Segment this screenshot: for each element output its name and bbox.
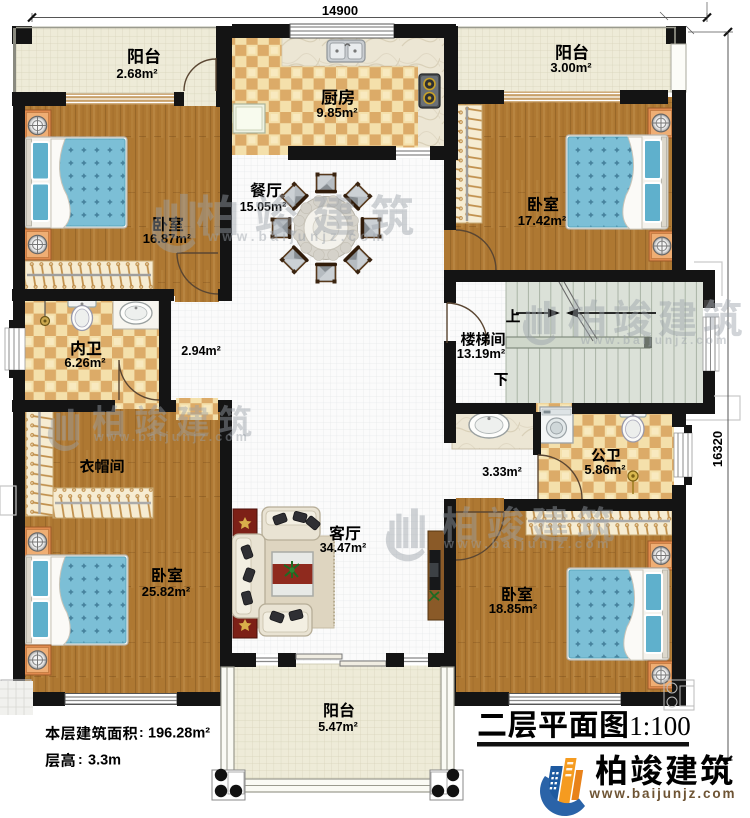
svg-text:9.85m²: 9.85m²: [316, 105, 358, 120]
svg-text:5.86m²: 5.86m²: [584, 462, 626, 477]
svg-text::: :: [78, 751, 83, 767]
svg-text:2.68m²: 2.68m²: [116, 66, 158, 81]
svg-text:17.42m²: 17.42m²: [518, 213, 567, 228]
svg-text:18.85m²: 18.85m²: [489, 601, 538, 616]
svg-text::: :: [139, 724, 144, 740]
svg-text:3.3m: 3.3m: [88, 753, 121, 769]
svg-text:2.94m²: 2.94m²: [181, 344, 221, 358]
svg-text:www.baijunjz.com: www.baijunjz.com: [589, 786, 737, 801]
svg-text:3.00m²: 3.00m²: [550, 60, 592, 75]
svg-text:www.baijunjz.com: www.baijunjz.com: [580, 333, 729, 347]
svg-text:34.47m²: 34.47m²: [320, 541, 367, 555]
svg-text:6.26m²: 6.26m²: [64, 355, 106, 370]
svg-text:196.28m²: 196.28m²: [148, 726, 210, 742]
svg-text:www.baijunjz.com: www.baijunjz.com: [207, 229, 389, 244]
svg-text:3.33m²: 3.33m²: [482, 465, 522, 479]
svg-text:www.baijunjz.com: www.baijunjz.com: [443, 536, 612, 551]
svg-text:13.19m²: 13.19m²: [457, 346, 506, 361]
svg-text:5.47m²: 5.47m²: [318, 720, 358, 734]
svg-text:16320: 16320: [710, 431, 725, 467]
svg-text:1:100: 1:100: [629, 711, 691, 741]
svg-text:14900: 14900: [322, 3, 358, 18]
svg-text:25.82m²: 25.82m²: [142, 584, 191, 599]
svg-text:www.baijunjz.com: www.baijunjz.com: [93, 430, 250, 444]
